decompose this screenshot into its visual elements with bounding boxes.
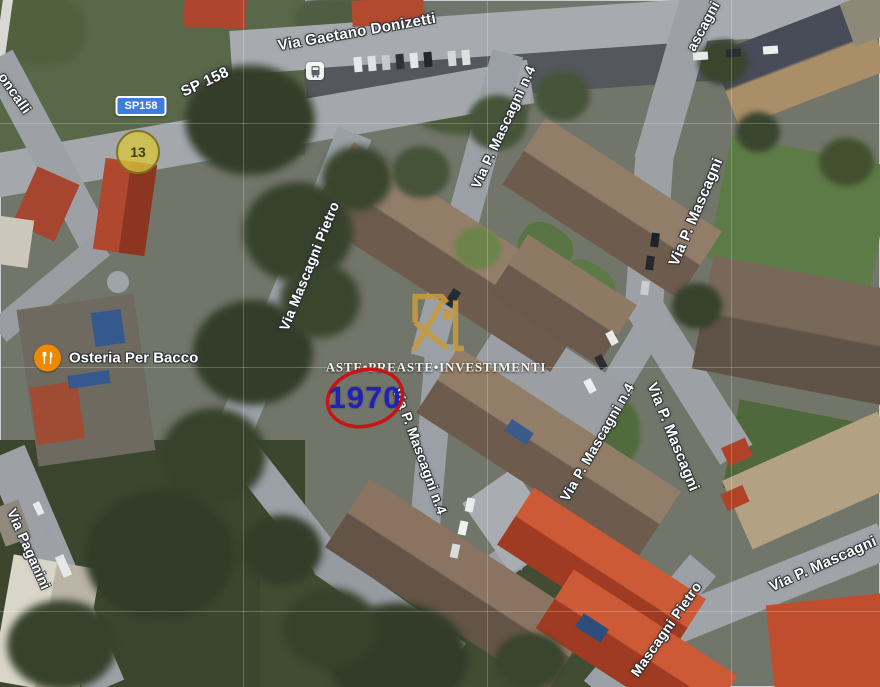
car	[762, 45, 778, 54]
car	[367, 55, 376, 71]
solar-panel	[91, 309, 125, 347]
tree	[535, 71, 590, 121]
tree	[283, 588, 378, 668]
tree	[161, 408, 266, 503]
fork-knife-glyph	[41, 352, 54, 365]
car	[353, 56, 362, 72]
car	[692, 51, 708, 60]
tree	[672, 283, 722, 329]
restaurant-icon[interactable]	[34, 345, 61, 372]
bus-icon	[309, 65, 322, 78]
barn-red	[93, 158, 157, 256]
car	[461, 49, 470, 65]
car	[725, 48, 741, 57]
poi-label: Osteria Per Bacco	[69, 350, 198, 367]
tree	[7, 600, 117, 687]
tree	[242, 515, 322, 585]
building-red-hip	[765, 591, 880, 687]
satellite-map[interactable]: oncalliSP 158Via Gaetano DonizettiVia Ma…	[0, 0, 880, 687]
tree	[85, 490, 235, 620]
poi-osteria-per-bacco[interactable]: Osteria Per Bacco	[34, 345, 198, 372]
building-red-roof	[29, 381, 85, 445]
cluster-marker-13[interactable]: 13	[116, 130, 160, 174]
car	[423, 51, 432, 67]
bus-stop-icon[interactable]	[306, 62, 324, 80]
pool-tank	[107, 271, 129, 293]
tree	[736, 112, 780, 152]
building-red-roof	[183, 0, 246, 29]
car	[458, 520, 469, 535]
car	[395, 53, 404, 69]
tree	[819, 138, 874, 186]
tree	[698, 40, 748, 85]
tree	[455, 227, 501, 269]
car	[381, 54, 390, 70]
building-white	[0, 216, 34, 268]
car	[447, 50, 456, 66]
car	[409, 52, 418, 68]
tree	[495, 633, 565, 687]
tree	[392, 146, 450, 198]
year-text: 1970	[329, 380, 402, 416]
route-badge-sp158: SP158	[115, 96, 166, 116]
cluster-count: 13	[130, 144, 146, 160]
